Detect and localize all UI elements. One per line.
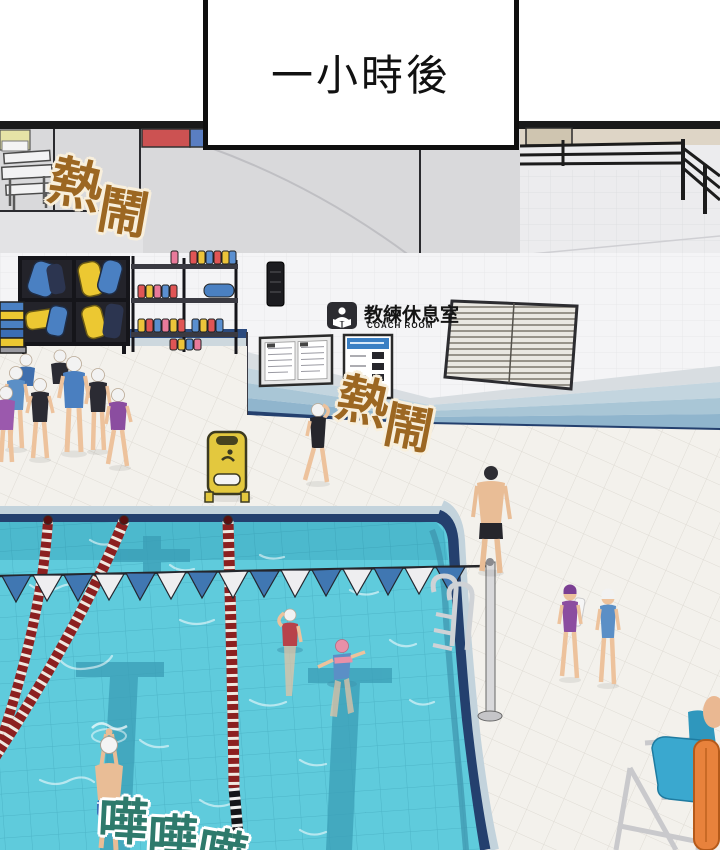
- bulletin-board: [260, 335, 332, 386]
- caption-text: 一小時後: [271, 42, 451, 103]
- comic-panel: 一小時後 熱鬧 熱鬧 嘩嘩嘩 教練休息室 COACH ROOM: [0, 0, 720, 850]
- sfx-char: 嘩: [193, 827, 250, 850]
- sfx-char: 嘩: [146, 815, 198, 850]
- window-blinds: [445, 301, 577, 389]
- kickboard-stack: [0, 302, 26, 353]
- sfx-char: 嘩: [97, 798, 149, 848]
- wet-floor-sign: [203, 432, 253, 502]
- caption-box: 一小時後: [203, 0, 519, 150]
- wall-speaker: [267, 262, 284, 306]
- sfx-char: 鬧: [380, 402, 437, 457]
- kickboard-shelf: [20, 258, 128, 354]
- swimming-pool: [0, 505, 494, 850]
- coach-room-sign-subtitle: COACH ROOM: [367, 321, 433, 330]
- coach-room-icon: [327, 302, 357, 329]
- sfx-char: 鬧: [94, 186, 153, 243]
- wall-panel-box: [526, 128, 572, 145]
- sfx-bottom: 嘩嘩嘩: [97, 798, 249, 850]
- red-wall-object: [142, 129, 190, 147]
